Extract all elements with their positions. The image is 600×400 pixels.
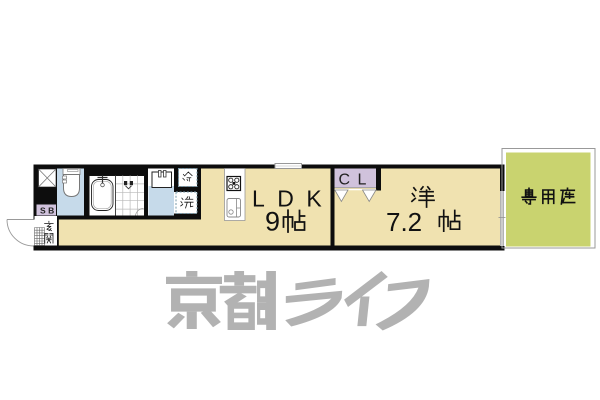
svg-text:CL: CL (339, 172, 374, 189)
svg-text:9: 9 (265, 207, 280, 237)
svg-text:SB: SB (40, 206, 57, 216)
svg-text:7.2: 7.2 (386, 207, 422, 237)
